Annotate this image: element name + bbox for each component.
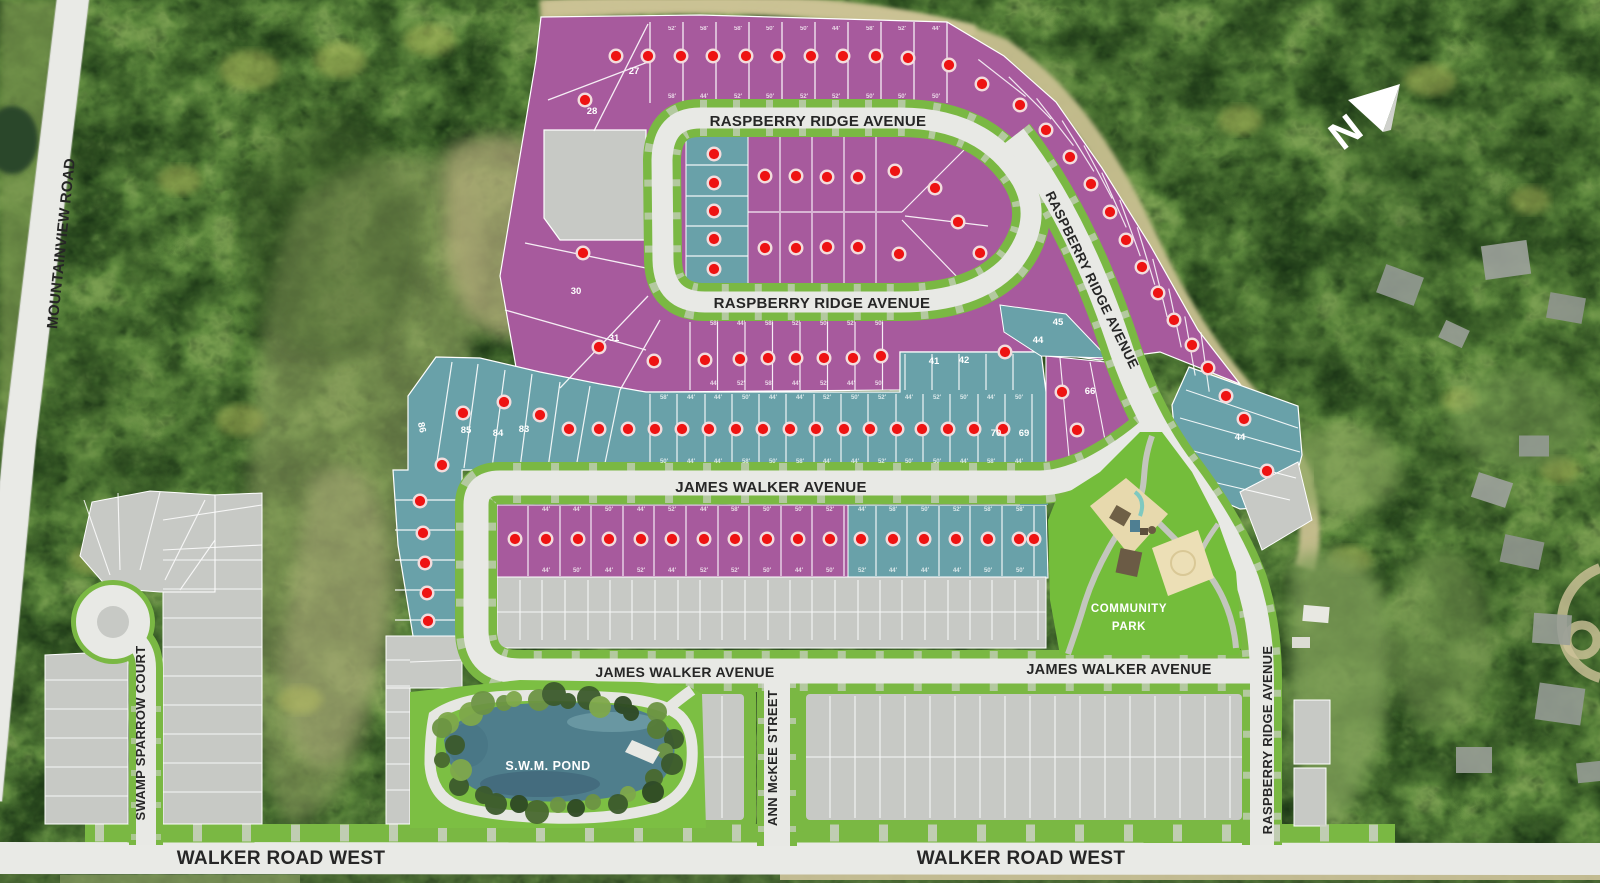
svg-text:58′: 58′ [866, 26, 875, 32]
svg-text:52′: 52′ [832, 94, 841, 100]
svg-text:50′: 50′ [766, 94, 775, 100]
svg-text:JAMES WALKER AVENUE: JAMES WALKER AVENUE [595, 664, 774, 680]
svg-text:50′: 50′ [875, 321, 884, 327]
svg-text:58′: 58′ [796, 459, 805, 465]
svg-text:66: 66 [1085, 386, 1096, 397]
svg-text:58′: 58′ [710, 321, 719, 327]
svg-text:50′: 50′ [1016, 568, 1025, 574]
svg-text:52′: 52′ [858, 568, 867, 574]
svg-text:COMMUNITY: COMMUNITY [1091, 603, 1167, 615]
svg-text:58′: 58′ [700, 26, 709, 32]
svg-text:50′: 50′ [1015, 395, 1024, 401]
svg-text:50′: 50′ [875, 381, 884, 387]
svg-text:50′: 50′ [984, 568, 993, 574]
svg-text:52′: 52′ [820, 381, 829, 387]
svg-text:52′: 52′ [792, 321, 801, 327]
svg-text:44′: 44′ [932, 26, 941, 32]
svg-text:58′: 58′ [1016, 507, 1025, 513]
svg-text:58′: 58′ [668, 94, 677, 100]
svg-text:50′: 50′ [933, 459, 942, 465]
svg-text:86: 86 [415, 421, 428, 434]
svg-text:50′: 50′ [905, 459, 914, 465]
svg-text:58′: 58′ [765, 381, 774, 387]
svg-text:58′: 58′ [660, 395, 669, 401]
svg-text:44′: 44′ [847, 381, 856, 387]
svg-text:44′: 44′ [710, 381, 719, 387]
svg-text:44′: 44′ [542, 568, 551, 574]
svg-text:WALKER ROAD WEST: WALKER ROAD WEST [177, 848, 386, 869]
svg-text:RASPBERRY RIDGE AVENUE: RASPBERRY RIDGE AVENUE [710, 113, 927, 130]
svg-text:50′: 50′ [660, 459, 669, 465]
svg-text:27: 27 [629, 66, 640, 77]
svg-text:44: 44 [1033, 335, 1044, 346]
svg-text:85: 85 [461, 425, 472, 436]
svg-text:84: 84 [493, 428, 504, 439]
svg-text:50′: 50′ [921, 507, 930, 513]
svg-text:44′: 44′ [605, 568, 614, 574]
svg-text:58′: 58′ [889, 507, 898, 513]
svg-text:RASPBERRY RIDGE AVENUE: RASPBERRY RIDGE AVENUE [714, 295, 931, 312]
svg-text:41: 41 [929, 356, 940, 367]
svg-text:S.W.M. POND: S.W.M. POND [505, 759, 590, 773]
svg-text:44′: 44′ [792, 381, 801, 387]
svg-text:WALKER ROAD WEST: WALKER ROAD WEST [917, 848, 1126, 869]
svg-text:28: 28 [587, 106, 598, 117]
svg-text:ANN McKEE STREET: ANN McKEE STREET [765, 690, 780, 826]
svg-text:50′: 50′ [820, 321, 829, 327]
svg-text:52′: 52′ [700, 568, 709, 574]
svg-text:52′: 52′ [878, 395, 887, 401]
svg-text:50′: 50′ [960, 395, 969, 401]
svg-text:50′: 50′ [742, 395, 751, 401]
svg-text:44′: 44′ [637, 507, 646, 513]
svg-text:58′: 58′ [734, 26, 743, 32]
svg-text:44′: 44′ [889, 568, 898, 574]
svg-text:50′: 50′ [605, 507, 614, 513]
svg-text:44′: 44′ [542, 507, 551, 513]
svg-text:44: 44 [1235, 432, 1246, 443]
svg-text:JAMES WALKER AVENUE: JAMES WALKER AVENUE [1026, 662, 1211, 678]
svg-text:52′: 52′ [878, 459, 887, 465]
svg-text:44′: 44′ [714, 395, 723, 401]
svg-text:44′: 44′ [1015, 459, 1024, 465]
svg-text:30: 30 [571, 286, 582, 297]
svg-text:JAMES WALKER AVENUE: JAMES WALKER AVENUE [675, 479, 867, 496]
svg-text:52′: 52′ [823, 395, 832, 401]
svg-text:50′: 50′ [766, 26, 775, 32]
svg-text:44′: 44′ [858, 507, 867, 513]
svg-text:50′: 50′ [932, 94, 941, 100]
svg-text:44′: 44′ [668, 568, 677, 574]
svg-text:58′: 58′ [731, 507, 740, 513]
svg-text:RASPBERRY RIDGE AVENUE: RASPBERRY RIDGE AVENUE [1260, 646, 1275, 835]
svg-text:58′: 58′ [765, 321, 774, 327]
svg-text:52′: 52′ [898, 26, 907, 32]
svg-text:50′: 50′ [851, 395, 860, 401]
svg-text:50′: 50′ [573, 568, 582, 574]
svg-text:31: 31 [609, 333, 620, 344]
svg-text:52′: 52′ [953, 507, 962, 513]
svg-text:42: 42 [959, 355, 970, 366]
svg-text:44′: 44′ [796, 395, 805, 401]
svg-text:44′: 44′ [823, 459, 832, 465]
svg-text:44′: 44′ [687, 395, 696, 401]
svg-text:52′: 52′ [668, 26, 677, 32]
svg-text:58′: 58′ [984, 507, 993, 513]
svg-text:50′: 50′ [826, 568, 835, 574]
svg-text:44′: 44′ [832, 26, 841, 32]
svg-text:44′: 44′ [700, 94, 709, 100]
svg-text:69: 69 [1019, 428, 1030, 439]
svg-text:PARK: PARK [1112, 621, 1146, 633]
svg-text:52′: 52′ [637, 568, 646, 574]
svg-text:58′: 58′ [987, 459, 996, 465]
svg-text:44′: 44′ [851, 459, 860, 465]
svg-text:44′: 44′ [737, 321, 746, 327]
svg-text:50′: 50′ [763, 568, 772, 574]
svg-text:50′: 50′ [898, 94, 907, 100]
svg-text:44′: 44′ [769, 395, 778, 401]
svg-text:50′: 50′ [866, 94, 875, 100]
svg-text:44′: 44′ [960, 459, 969, 465]
svg-text:52′: 52′ [800, 94, 809, 100]
svg-text:44′: 44′ [953, 568, 962, 574]
svg-text:52′: 52′ [734, 94, 743, 100]
svg-text:52′: 52′ [847, 321, 856, 327]
svg-text:52′: 52′ [826, 507, 835, 513]
svg-text:45: 45 [1053, 317, 1064, 328]
svg-text:44′: 44′ [573, 507, 582, 513]
svg-text:50′: 50′ [795, 507, 804, 513]
svg-text:44′: 44′ [714, 459, 723, 465]
svg-text:44′: 44′ [700, 507, 709, 513]
svg-text:44′: 44′ [905, 395, 914, 401]
svg-text:44′: 44′ [795, 568, 804, 574]
svg-text:83: 83 [519, 424, 530, 435]
svg-text:52′: 52′ [668, 507, 677, 513]
svg-text:70: 70 [991, 428, 1002, 439]
svg-text:44′: 44′ [987, 395, 996, 401]
svg-text:44′: 44′ [687, 459, 696, 465]
svg-text:50′: 50′ [769, 459, 778, 465]
svg-text:SWAMP SPARROW COURT: SWAMP SPARROW COURT [133, 646, 148, 821]
svg-text:58′: 58′ [742, 459, 751, 465]
svg-text:52′: 52′ [933, 395, 942, 401]
svg-text:50′: 50′ [800, 26, 809, 32]
svg-text:44′: 44′ [921, 568, 930, 574]
svg-text:50′: 50′ [763, 507, 772, 513]
svg-text:52′: 52′ [731, 568, 740, 574]
svg-text:52′: 52′ [737, 381, 746, 387]
